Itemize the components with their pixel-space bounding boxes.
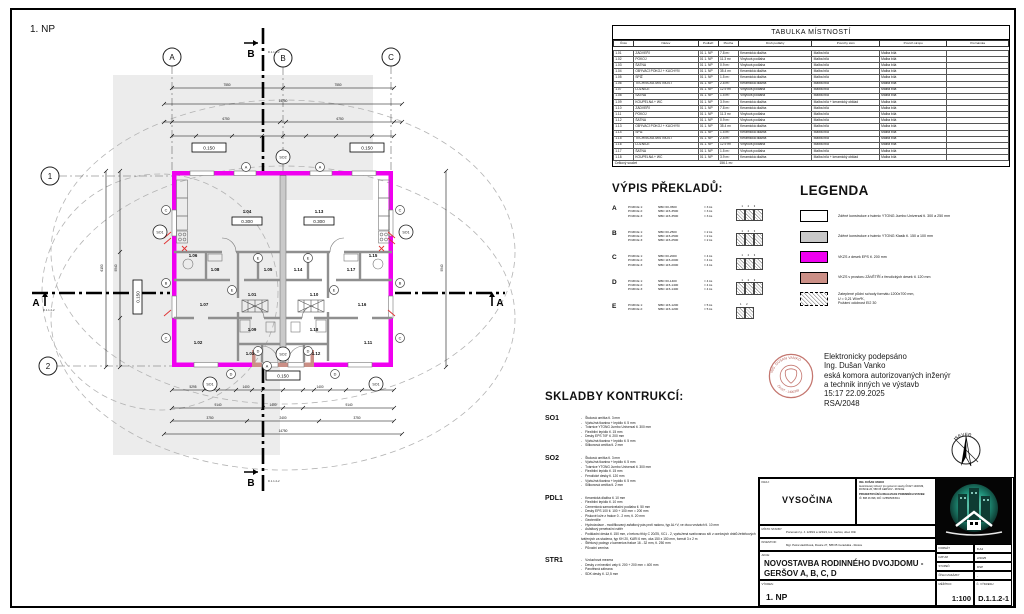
svg-text:0.300: 0.300 (313, 219, 325, 224)
svg-text:C: C (399, 209, 402, 213)
project-title: NOVOSTAVBA RODINNÉHO DVOJDOMU - GERŠOV A… (764, 559, 935, 579)
svg-text:6750: 6750 (222, 117, 229, 121)
legend-item-vkzs-eps: VKZS z desek EPS tl. 200 mm (800, 251, 1012, 263)
svg-text:E: E (307, 257, 310, 261)
list-item: RSA/2048 (824, 399, 951, 408)
table-row: POZICE 3:NBD 115-2500= 2 ks (628, 238, 726, 242)
lintel-diagram: 1 2 3 (736, 279, 763, 295)
lintel-diagram: 1 2 (736, 303, 754, 319)
room-table-header: ČísloNázev PodlažíPlocha Druh podlahyPov… (614, 40, 1009, 50)
signature-text: Elektronicky podepsánoIng. Dušan Vankoes… (824, 352, 951, 408)
list-item: Silikonová omítka tl. 2 mm (581, 443, 756, 448)
legend-swatch-gray (800, 231, 828, 243)
svg-text:0.300: 0.300 (241, 219, 253, 224)
table-row: POZICE 3:NBD 115-2000= 4 ks (628, 263, 726, 267)
svg-text:D: D (334, 373, 337, 377)
svg-text:1.08: 1.08 (211, 267, 220, 272)
svg-text:9140: 9140 (214, 403, 221, 407)
svg-text:SEVER: SEVER (954, 432, 973, 441)
porch-wall-rose (252, 363, 314, 368)
svg-text:SO1: SO1 (206, 382, 213, 386)
company-logo (936, 478, 1012, 544)
assembly-str1: STR1 Vzduchová mezeraDesky z minerální v… (545, 557, 763, 576)
svg-text:1.10: 1.10 (310, 292, 319, 297)
list-item: Silikonová omítka tl. 2 mm (581, 483, 756, 488)
svg-text:D: D (257, 350, 260, 354)
drawing-number: D.1.1.2-1 (975, 594, 1009, 603)
electronic-signature: ING. DUŠAN VANKO ČKAIT - 1400339 Elektro… (764, 348, 1014, 408)
meta-format-value: 8 A4 (974, 544, 1012, 553)
meta-datum-value: 2/2025 (974, 553, 1012, 562)
list-item: 15:17 22.09.2025 (824, 389, 951, 398)
list-item: Původní zemina (581, 546, 756, 551)
svg-text:5295: 5295 (189, 385, 196, 389)
legend-swatch-rose (800, 272, 828, 284)
kraj-value: VYSOČINA (760, 495, 855, 505)
section-label-b-bottom: B (247, 478, 254, 489)
svg-text:D: D (307, 350, 310, 354)
svg-text:A: A (319, 166, 322, 170)
title-block: KRAJ: VYSOČINA ING. DUŠAN VANKO Autorizo… (758, 477, 1014, 607)
meta-format-label: FORMÁT (936, 544, 974, 553)
svg-text:7550: 7550 (334, 83, 341, 87)
drawing-sheet: A B C 1 2 7550 7550 14750 6750 6750 (0, 0, 1024, 614)
lintel-diagram: 1 2 3 (736, 254, 763, 270)
svg-text:1400: 1400 (316, 385, 323, 389)
section-label-a-right: A (496, 298, 503, 309)
section-label-a-left: A (32, 298, 39, 309)
room-table: TABULKA MÍSTNOSTÍ ČísloNázev PodlažíPloc… (612, 25, 1010, 167)
svg-text:1.01: 1.01 (248, 292, 257, 297)
svg-text:A: A (245, 166, 248, 170)
svg-text:9140: 9140 (345, 403, 352, 407)
svg-text:1.06: 1.06 (189, 253, 198, 258)
svg-text:0.150: 0.150 (361, 146, 373, 151)
legend-title: LEGENDA (800, 183, 1012, 198)
section-ref-a-left: D.1.1.2-2 (43, 308, 55, 312)
grid-bubble-b: B (280, 54, 285, 63)
misto-stavby-row: MÍSTO STAVBY: Pozemek č.p. č. 1239/1 a 1… (759, 525, 936, 538)
legend-item-ytong-klasik: Zděné konstrukce z tvárnic YTONG Klasik … (800, 231, 1012, 243)
lintel-schedule: VÝPIS PŘEKLADŮ: A POZICE 1:NBD 60-3500= … (612, 183, 794, 328)
list-item: eská komora autorizovaných inženýr (824, 371, 951, 380)
meta-zakazka-value: - (974, 571, 1012, 580)
svg-text:A: A (266, 365, 269, 369)
svg-text:1.13: 1.13 (315, 209, 324, 214)
svg-text:C: C (399, 337, 402, 341)
meta-stupen-value: DSP (974, 562, 1012, 571)
svg-text:7550: 7550 (223, 83, 230, 87)
svg-text:SO2: SO2 (279, 155, 286, 159)
svg-text:E: E (333, 289, 336, 293)
list-item: Ing. Dušan Vanko (824, 361, 951, 370)
table-row: POZICE 3:NBD 115-3500= 3 ks (628, 214, 726, 218)
svg-text:1.11: 1.11 (364, 340, 373, 345)
svg-text:1.15: 1.15 (369, 253, 378, 258)
meta-datum-label: DATUM (936, 553, 974, 562)
lintel-item-c: C POZICE 1:NBD 60-2000= 4 ksPOZICE 2:NBD… (612, 254, 794, 270)
svg-text:3750: 3750 (353, 416, 360, 420)
room-table-total: Celkový součet 156.1 m² (614, 161, 1009, 167)
svg-text:0.150: 0.150 (203, 146, 215, 151)
svg-text:1.07: 1.07 (200, 302, 209, 307)
svg-text:B: B (399, 282, 402, 286)
grid-bubble-c: C (388, 53, 394, 62)
list-item: Elektronicky podepsáno (824, 352, 951, 361)
legend-item-vkzs-fenolic: VKZS v prostoru ZÁVĚTŘÍ z fenolických de… (800, 272, 1012, 284)
svg-text:C: C (165, 337, 168, 341)
svg-text:0.150: 0.150 (136, 291, 141, 303)
assembly-so2: SO2 Štuková omítka tl. 3 mmVýztužná tkan… (545, 455, 763, 488)
legend-item-ytong-jumbo: Zděné konstrukce z tvárnic YTONG Jumbo U… (800, 210, 1012, 222)
svg-text:E: E (257, 257, 260, 261)
svg-text:6150: 6150 (100, 264, 104, 271)
svg-text:1.12: 1.12 (312, 351, 321, 356)
svg-text:SO1: SO1 (372, 382, 379, 386)
svg-text:1400: 1400 (269, 403, 276, 407)
svg-text:1400: 1400 (242, 385, 249, 389)
grid-bubble-2: 2 (46, 362, 51, 371)
svg-text:9540: 9540 (114, 264, 118, 271)
assembly-pdl1: PDL1 Keramická dlažba tl. 10 mmFlexibiln… (545, 495, 763, 551)
svg-text:1.04: 1.04 (243, 209, 252, 214)
legend: LEGENDA Zděné konstrukce z tvárnic YTONG… (800, 183, 1012, 315)
vykres-cell: VÝKRES: 1. NP (759, 580, 936, 606)
drawing-name: 1. NP (766, 592, 787, 602)
svg-text:1.17: 1.17 (347, 267, 356, 272)
list-item: Podkladní deska tl. 150 mm, z betonu tří… (581, 532, 756, 541)
scale-value: 1:100 (937, 594, 971, 603)
page-title: 1. NP (30, 24, 55, 35)
svg-text:1.09: 1.09 (248, 327, 257, 332)
svg-text:SO2: SO2 (279, 352, 286, 356)
north-arrow: SEVER (944, 424, 988, 474)
svg-text:3750: 3750 (206, 416, 213, 420)
list-item: SDK desky tl. 12,5 mm (581, 572, 756, 577)
svg-text:1.14: 1.14 (294, 267, 303, 272)
meta-zakazka-label: ČÍSLO ZAKÁZKY (936, 571, 974, 580)
floor-plan: A B C 1 2 7550 7550 14750 6750 6750 (0, 0, 560, 614)
svg-text:D: D (230, 373, 233, 377)
legend-item-attic-stairs: Zateplené půdní schody formátu 1200x700 … (800, 292, 1012, 306)
lintel-item-d: D POZICE 1:NBD 60-1400= 4 ksPOZICE 2:NBD… (612, 279, 794, 295)
svg-text:B: B (165, 282, 168, 286)
lintel-schedule-title: VÝPIS PŘEKLADŮ: (612, 183, 794, 195)
investor-row: INVESTOR: Mgr. Petra Havlíčková, Rosice … (759, 538, 936, 551)
svg-text:0.150: 0.150 (277, 374, 289, 379)
list-item: a technik inných ve výstavb (824, 380, 951, 389)
designer-cell: ING. DUŠAN VANKO Autorizovaný inženýr pr… (856, 478, 936, 525)
svg-text:1.02: 1.02 (194, 340, 203, 345)
drawing-number-cell: Č. VÝKRESU: D.1.1.2-1 (974, 580, 1012, 606)
lintel-diagram: 1 2 3 (736, 230, 763, 246)
authorization-seal-icon: ING. DUŠAN VANKO ČKAIT - 1400339 (764, 348, 818, 404)
meritko-cell: MĚŘÍTKO: 1:100 (936, 580, 974, 606)
svg-text:1.05: 1.05 (264, 267, 273, 272)
svg-text:2400: 2400 (279, 416, 286, 420)
legend-swatch-magenta (800, 251, 828, 263)
kraj-cell: KRAJ: VYSOČINA (759, 478, 856, 525)
svg-text:9540: 9540 (440, 264, 444, 271)
svg-text:1.18: 1.18 (310, 327, 319, 332)
legend-swatch-white (800, 210, 828, 222)
legend-swatch-hatch (800, 292, 828, 306)
terrain-shading (113, 75, 373, 455)
section-label-b-top: B (247, 49, 254, 60)
lintel-item-e: E POZICE 1:NBD 115-1200= 5 ksPOZICE 2:NB… (612, 303, 794, 319)
assemblies-title: SKLADBY KONTRUKCÍ: (545, 391, 763, 403)
section-ref-bottom: D.1.1.2-2 (268, 479, 280, 483)
svg-text:C: C (165, 209, 168, 213)
lintel-item-a: A POZICE 1:NBD 60-3500= 3 ksPOZICE 2:NBD… (612, 205, 794, 221)
meta-stupen-label: STUPEŇ (936, 562, 974, 571)
room-table-title: TABULKA MÍSTNOSTÍ (613, 26, 1009, 40)
section-ref-top: D.1.1.2-2 (268, 50, 280, 54)
akce-cell: AKCE: NOVOSTAVBA RODINNÉHO DVOJDOMU - GE… (759, 551, 936, 580)
svg-text:1.16: 1.16 (358, 302, 367, 307)
assembly-so1: SO1 Štuková omítka tl. 3 mmVýztužná tkan… (545, 415, 763, 448)
svg-text:E: E (231, 289, 234, 293)
lintel-diagram: 1 2 3 (736, 205, 763, 221)
grid-bubble-a: A (169, 53, 175, 62)
svg-text:6750: 6750 (336, 117, 343, 121)
party-wall (280, 176, 286, 363)
assemblies: SKLADBY KONTRUKCÍ: SO1 Štuková omítka tl… (545, 391, 763, 583)
room-table-body: 1.01ZÁDVEŘÍ01 1. NP7.8 m²Keramická dlažb… (614, 50, 1009, 160)
svg-text:14750: 14750 (279, 99, 288, 103)
grid-bubble-1: 1 (48, 172, 53, 181)
table-row: POZICE 2:NBD 115-1200= 5 ks (628, 307, 726, 311)
lintel-item-b: B POZICE 1:NBD 60-2500= 2 ksPOZICE 2:NBD… (612, 230, 794, 246)
svg-text:SO1: SO1 (402, 230, 409, 234)
table-row: POZICE 3:NBD 115-1400= 4 ks (628, 287, 726, 291)
svg-text:14750: 14750 (279, 429, 288, 433)
svg-text:SO1: SO1 (156, 230, 163, 234)
